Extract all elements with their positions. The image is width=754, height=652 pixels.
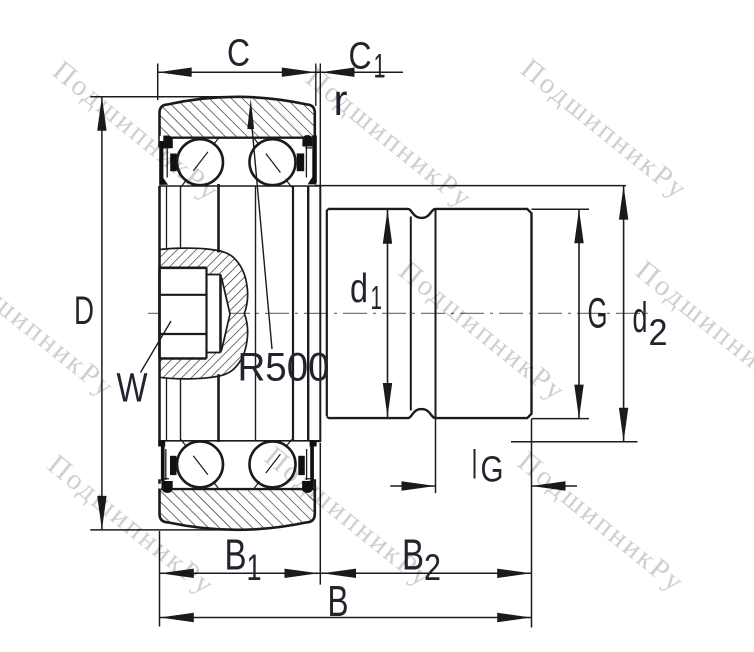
svg-text:G: G: [481, 449, 504, 490]
svg-text:D: D: [74, 289, 94, 333]
svg-text:G: G: [588, 290, 608, 338]
svg-text:1: 1: [374, 48, 386, 86]
svg-text:C: C: [227, 33, 250, 75]
svg-text:1: 1: [371, 279, 383, 316]
svg-text:R500: R500: [238, 346, 330, 390]
svg-text:l: l: [472, 442, 477, 488]
svg-text:B: B: [225, 531, 247, 580]
svg-text:B: B: [328, 577, 349, 626]
svg-text:1: 1: [247, 547, 262, 588]
svg-text:d: d: [633, 294, 648, 342]
svg-text:W: W: [117, 365, 148, 411]
svg-text:C: C: [349, 36, 372, 78]
svg-text:d: d: [350, 265, 368, 311]
svg-text:2: 2: [649, 312, 668, 353]
